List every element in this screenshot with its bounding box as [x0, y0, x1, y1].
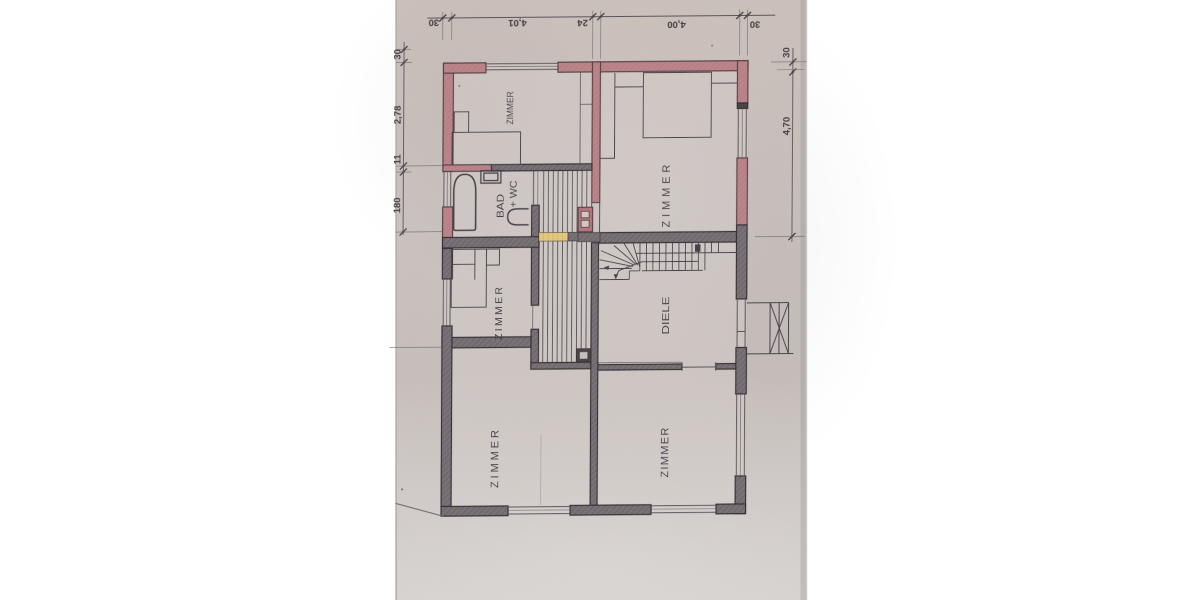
svg-text:+ WC: + WC	[509, 180, 520, 207]
svg-text:ZIMMER: ZIMMER	[659, 427, 671, 477]
svg-text:4,70: 4,70	[782, 117, 793, 136]
svg-text:ZIMMER: ZIMMER	[493, 287, 505, 341]
svg-text:30: 30	[782, 47, 793, 58]
svg-text:2,78: 2,78	[393, 106, 404, 125]
svg-text:DIELE: DIELE	[661, 296, 672, 335]
svg-text:4,01: 4,01	[508, 17, 527, 28]
svg-text:180: 180	[392, 197, 403, 213]
svg-text:BAD: BAD	[496, 194, 507, 218]
svg-text:30: 30	[393, 49, 404, 60]
svg-text:ZIMMER: ZIMMER	[505, 91, 515, 125]
svg-text:4,00: 4,00	[667, 18, 686, 29]
svg-text:30: 30	[750, 18, 761, 29]
svg-text:30: 30	[429, 17, 440, 28]
svg-text:11: 11	[392, 154, 403, 165]
svg-text:24: 24	[577, 17, 588, 28]
